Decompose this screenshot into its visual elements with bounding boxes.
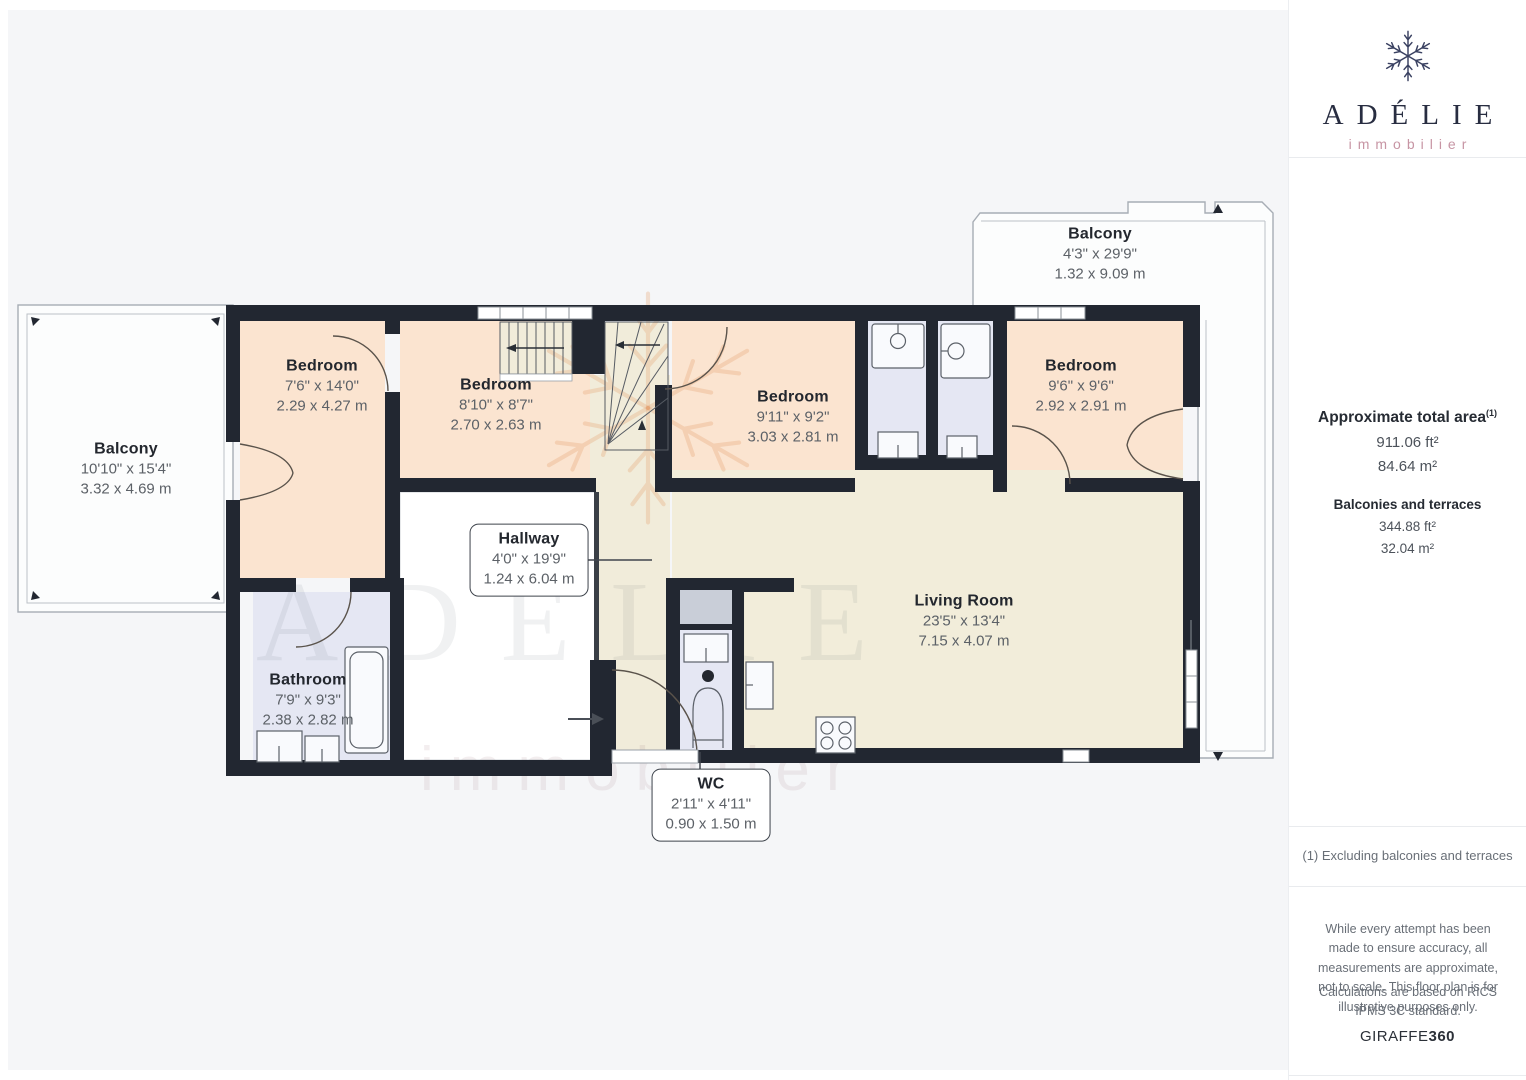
total-area-ft: 911.06 ft² [1289,434,1526,451]
area-footnote: (1) Excluding balconies and terraces [1289,848,1526,863]
total-area-title: Approximate total area(1) [1289,408,1526,427]
room-label-living-room: Living Room 23'5" x 13'4" 7.15 x 4.07 m [914,592,1013,651]
divider [1289,826,1526,827]
room-label-balcony-top: Balcony 4'3" x 29'9" 1.32 x 9.09 m [1055,225,1146,284]
brand-subtitle: immobilier [1289,136,1526,152]
room-label-wc: WC 2'11" x 4'11" 0.90 x 1.50 m [652,769,771,842]
balconies-m: 32.04 m² [1289,541,1526,556]
room-label-hallway: Hallway 4'0" x 19'9" 1.24 x 6.04 m [470,524,589,597]
divider [1289,1075,1526,1076]
brand-name: ADÉLIE [1289,99,1526,132]
snowflake-icon [1380,28,1436,84]
room-label-bedroom-2: Bedroom 8'10" x 8'7" 2.70 x 2.63 m [451,376,542,435]
total-area-m: 84.64 m² [1289,458,1526,475]
standard-text: Calculations are based on RICS IPMS 3C s… [1308,983,1508,1022]
floorplan-page: ADÉLIE immobilier [0,0,1526,1080]
room-label-bathroom: Bathroom 7'9" x 9'3" 2.38 x 2.82 m [263,671,354,730]
divider [1289,157,1526,158]
divider [1289,886,1526,887]
toilet-cistern [702,670,714,682]
balconies-ft: 344.88 ft² [1289,519,1526,534]
room-label-bedroom-1: Bedroom 7'6" x 14'0" 2.29 x 4.27 m [277,357,368,416]
giraffe360-credit: GIRAFFE360 [1289,1028,1526,1045]
brand-logo: ADÉLIE immobilier [1289,28,1526,152]
area-summary: Approximate total area(1) 911.06 ft² 84.… [1289,408,1526,556]
room-label-bedroom-4: Bedroom 9'6" x 9'6" 2.92 x 2.91 m [1036,357,1127,416]
balconies-title: Balconies and terraces [1289,497,1526,512]
room-label-balcony-left: Balcony 10'10" x 15'4" 3.32 x 4.69 m [81,440,172,499]
wc-interior [680,590,732,750]
room-label-bedroom-3: Bedroom 9'11" x 9'2" 3.03 x 2.81 m [748,388,839,447]
info-sidebar: ADÉLIE immobilier Approximate total area… [1288,0,1526,1080]
wc-duct [680,590,732,624]
